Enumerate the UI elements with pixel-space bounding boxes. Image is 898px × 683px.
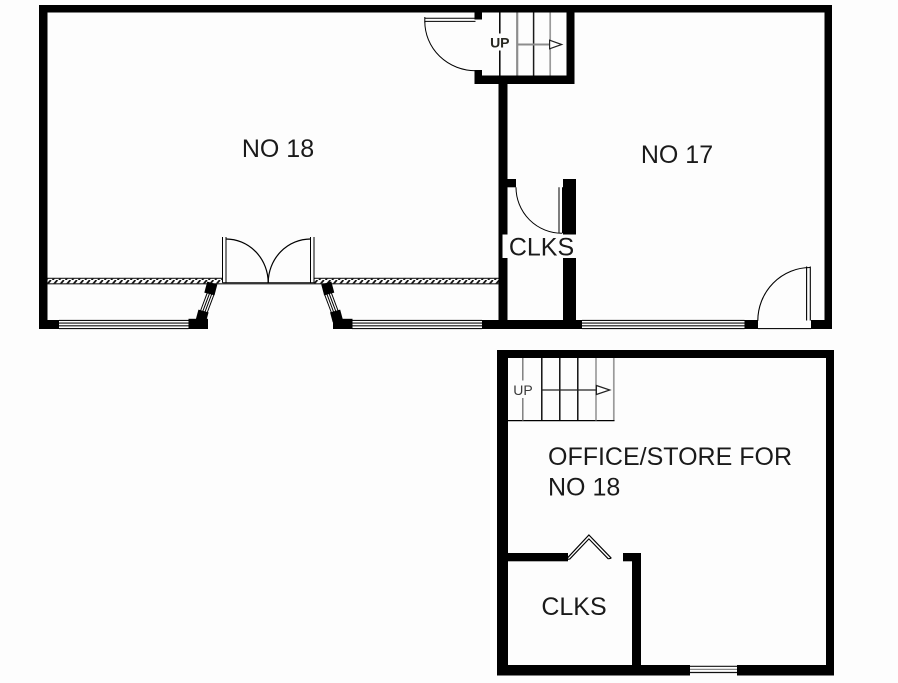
svg-text:NO 18: NO 18 xyxy=(548,474,620,502)
svg-text:UP: UP xyxy=(490,35,509,51)
svg-text:NO 18: NO 18 xyxy=(242,135,314,163)
svg-text:CLKS: CLKS xyxy=(541,593,606,621)
svg-text:NO 17: NO 17 xyxy=(641,141,713,169)
svg-text:CLKS: CLKS xyxy=(509,234,574,262)
svg-text:UP: UP xyxy=(513,382,532,398)
svg-text:OFFICE/STORE FOR: OFFICE/STORE FOR xyxy=(548,443,792,471)
